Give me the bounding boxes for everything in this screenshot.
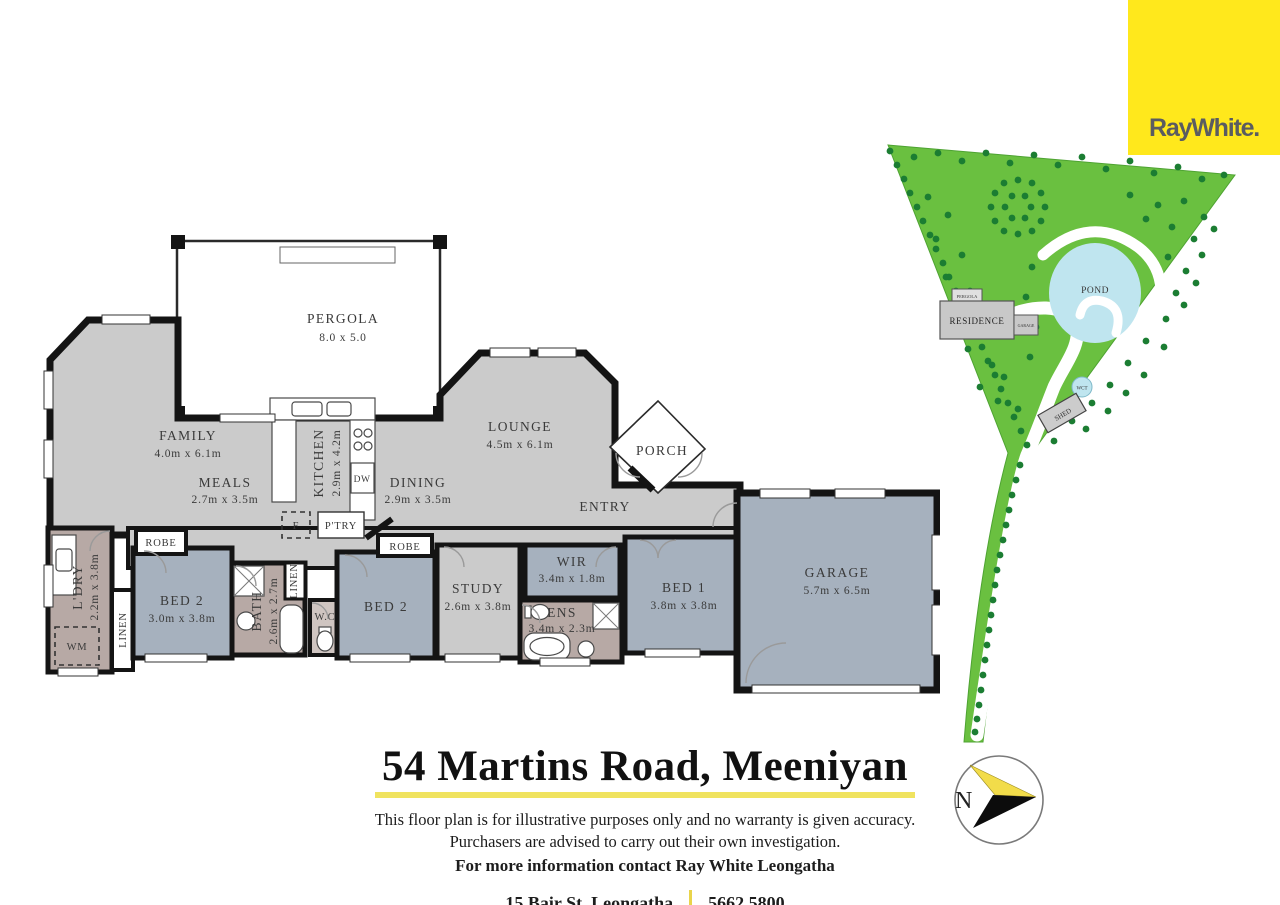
- site-pergola-label: PERGOLA: [957, 294, 979, 299]
- bed2-left-label: BED 2: [160, 593, 204, 608]
- garage-label: GARAGE: [805, 565, 870, 580]
- room-bed1: BED 1 3.8m x 3.8m: [625, 537, 743, 653]
- fridge-label: F: [293, 521, 300, 532]
- disclaimer-line-2: Purchasers are advised to carry out thei…: [300, 832, 990, 852]
- meals-label: MEALS: [199, 475, 252, 490]
- bath-dims: 2.6m x 2.7m: [268, 578, 280, 645]
- site-garage-label: GARAGE: [1018, 323, 1035, 328]
- room-wir: WIR 3.4m x 1.8m: [525, 545, 620, 598]
- room-study: STUDY 2.6m x 3.8m: [437, 545, 520, 658]
- lounge-dims: 4.5m x 6.1m: [487, 439, 554, 451]
- lounge-label: LOUNGE: [488, 419, 552, 434]
- dining-label: DINING: [390, 475, 446, 490]
- room-bath: BATH 2.6m x 2.7m LINEN: [232, 563, 305, 655]
- wc-label: W.C: [315, 612, 336, 623]
- laundry-dims: 2.2m x 3.8m: [89, 554, 101, 621]
- wir-label: WIR: [557, 554, 587, 569]
- wir-dims: 3.4m x 1.8m: [539, 573, 606, 585]
- wm-label: WM: [67, 642, 88, 653]
- ensuite-dims: 3.4m x 2.3m: [529, 623, 596, 635]
- title-underline: [375, 792, 915, 798]
- room-ensuite: ENS 3.4m x 2.3m: [520, 600, 622, 662]
- family-dims: 4.0m x 6.1m: [155, 448, 222, 460]
- raywhite-logo-text: RayWhite.: [1149, 114, 1259, 143]
- closet-linen-left: LINEN: [112, 590, 133, 670]
- compass: N: [948, 750, 1052, 854]
- room-laundry: WM L'DRY 2.2m x 3.8m: [48, 528, 112, 672]
- kitchen-dims: 2.9m x 4.2m: [331, 430, 343, 497]
- room-pergola: PERGOLA 8.0 x 5.0: [171, 235, 447, 420]
- study-label: STUDY: [452, 581, 504, 596]
- room-bed2-mid: BED 2 ROBE: [337, 535, 435, 658]
- entry-label: ENTRY: [579, 499, 630, 514]
- pergola-label: PERGOLA: [307, 311, 379, 326]
- contact-row: 15 Bair St, Leongatha 5662 5800: [300, 890, 990, 905]
- raywhite-logo: RayWhite.: [1128, 0, 1280, 155]
- office-phone: 5662 5800: [708, 893, 785, 905]
- page-title: 54 Martins Road, Meeniyan: [300, 744, 990, 789]
- linen-bath-label: LINEN: [289, 563, 300, 599]
- site-lot: [888, 145, 1235, 742]
- dw-label: DW: [354, 475, 371, 485]
- contact-line: For more information contact Ray White L…: [300, 856, 990, 876]
- title-block: 54 Martins Road, Meeniyan This floor pla…: [300, 744, 990, 905]
- porch-label: PORCH: [636, 443, 688, 458]
- bed1-label: BED 1: [662, 580, 706, 595]
- robe-left-label: ROBE: [145, 538, 176, 549]
- pantry-label: P'TRY: [325, 521, 357, 532]
- robe-mid-label: ROBE: [389, 542, 420, 553]
- bath-label: BATH: [249, 591, 264, 632]
- bed1-dims: 3.8m x 3.8m: [651, 600, 718, 612]
- bed2-mid-label: BED 2: [364, 599, 408, 614]
- room-garage: GARAGE 5.7m x 6.5m: [737, 493, 937, 693]
- contact-divider: [689, 890, 692, 905]
- wct-label: WCT: [1076, 387, 1087, 392]
- floor-plan: PERGOLA 8.0 x 5.0 FAMILY 4.0m x 6.1m MEA…: [40, 235, 940, 735]
- pond-label: POND: [1081, 286, 1109, 296]
- dining-dims: 2.9m x 3.5m: [385, 494, 452, 506]
- office-address: 15 Bair St, Leongatha: [505, 893, 673, 905]
- bed2-left-dims: 3.0m x 3.8m: [149, 613, 216, 625]
- room-porch: PORCH: [610, 401, 705, 493]
- family-label: FAMILY: [159, 428, 217, 443]
- site-residence-label: RESIDENCE: [950, 316, 1005, 326]
- ensuite-label: ENS: [547, 605, 577, 620]
- compass-north-label: N: [955, 788, 972, 814]
- kitchen-label: KITCHEN: [311, 428, 326, 497]
- room-bed2-left: BED 2 3.0m x 3.8m ROBE: [133, 530, 232, 658]
- flyer-page: RayWhite. POND: [0, 0, 1280, 905]
- linen-left-label: LINEN: [118, 612, 129, 648]
- laundry-label: L'DRY: [70, 564, 85, 609]
- garage-dims: 5.7m x 6.5m: [804, 585, 871, 597]
- disclaimer-line-1: This floor plan is for illustrative purp…: [300, 810, 990, 830]
- study-dims: 2.6m x 3.8m: [445, 601, 512, 613]
- meals-dims: 2.7m x 3.5m: [192, 494, 259, 506]
- pergola-dims: 8.0 x 5.0: [319, 332, 366, 344]
